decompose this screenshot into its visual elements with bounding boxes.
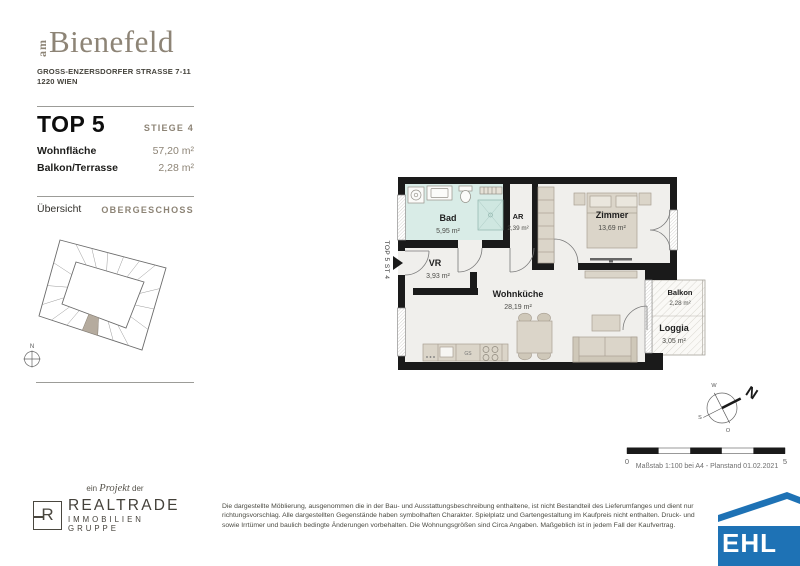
divider-top xyxy=(37,106,194,107)
area-label: Balkon/Terrasse xyxy=(37,162,118,174)
realtrade-logo: R REALTRADE IMMOBILIEN GRUPPE xyxy=(33,498,197,533)
room-name-zimmer: Zimmer xyxy=(596,210,629,220)
room-area-zimmer: 13,69 m² xyxy=(598,225,626,232)
unit-stiege: STIEGE 4 xyxy=(144,123,194,133)
ehl-wordmark: EHL xyxy=(722,528,777,559)
realtrade-name: REALTRADE xyxy=(68,498,197,514)
wardrobe xyxy=(538,187,554,263)
overview-floor: OBERGESCHOSS xyxy=(101,205,194,215)
area-value: 2,28 m² xyxy=(158,162,194,174)
disclaimer-line-2: richtungsvorschlag. Alle dargestellten G… xyxy=(222,511,719,520)
room-area-ar: 2,39 m² xyxy=(507,225,528,232)
project-address: GROSS-ENZERSDORFER STRASSE 7-11 1220 WIE… xyxy=(37,67,191,86)
entrance-label: TOP 5 ST 4 xyxy=(383,241,390,280)
north-needle xyxy=(722,399,741,409)
apartment-floorplan: GS Bad 5,95 m² AR 2,39 m² Zimmer 13,69 m… xyxy=(373,163,718,378)
overview-header: Übersicht OBERGESCHOSS xyxy=(37,203,194,215)
room-area-balkon: 2,28 m² xyxy=(669,300,690,307)
legal-disclaimer: Die dargestellte Möblierung, ausgenommen… xyxy=(222,502,719,530)
unit-header: TOP 5 STIEGE 4 xyxy=(37,112,194,136)
sideboard xyxy=(585,271,637,278)
kitchen-sink xyxy=(440,347,453,357)
brand-logo: am Bienefeld xyxy=(36,27,174,57)
realtrade-letter: R xyxy=(34,505,61,525)
washing-machine xyxy=(408,187,424,203)
radiator xyxy=(480,187,502,194)
room-name-bad: Bad xyxy=(439,213,456,223)
compass-s: S xyxy=(698,415,702,421)
credit-word: Projekt xyxy=(99,483,130,494)
room-name-balkon: Balkon xyxy=(667,288,692,297)
room-area-wohnkueche: 28,19 m² xyxy=(504,304,532,311)
tv-stand xyxy=(609,261,613,263)
room-name-loggia: Loggia xyxy=(659,323,689,333)
compass-n: N xyxy=(742,383,760,403)
address-line-2: 1220 WIEN xyxy=(37,77,191,87)
realtrade-line xyxy=(34,516,44,518)
project-credit-line: ein Projekt der xyxy=(33,483,197,494)
disclaimer-line-3: sowie Irrtümer und baulich bedingte Ände… xyxy=(222,521,719,530)
area-label: Wohnfläche xyxy=(37,145,96,157)
sink-vanity xyxy=(427,186,452,200)
room-area-bad: 5,95 m² xyxy=(436,228,460,235)
overview-label: Übersicht xyxy=(37,203,81,215)
compass-rose: N W S O xyxy=(686,378,766,440)
room-area-vr: 3,93 m² xyxy=(426,273,450,280)
nightstand-right xyxy=(639,193,651,205)
room-area-loggia: 3,05 m² xyxy=(662,338,686,345)
building-outline xyxy=(39,240,166,350)
divider-overview xyxy=(36,382,194,383)
dishwasher-label: GS xyxy=(464,351,472,357)
realtrade-mark-icon: R xyxy=(33,501,62,530)
sofa xyxy=(573,337,637,362)
ehl-logo: EHL xyxy=(712,486,800,566)
address-line-1: GROSS-ENZERSDORFER STRASSE 7-11 xyxy=(37,67,191,77)
overview-compass: N xyxy=(24,344,41,368)
divider-mid xyxy=(37,196,194,197)
coffee-table xyxy=(592,315,620,331)
compass-o: O xyxy=(726,428,731,434)
credit-post: der xyxy=(130,484,144,493)
overview-siteplan: N xyxy=(14,230,204,382)
balcony-glass-door xyxy=(645,280,652,353)
compass-w: W xyxy=(711,383,717,389)
french-window-zimmer xyxy=(670,210,678,250)
window-wohnkueche xyxy=(398,308,406,356)
nightstand-left xyxy=(574,193,585,205)
brand-logo-name: Bienefeld xyxy=(49,27,174,57)
realtrade-subtitle: IMMOBILIEN GRUPPE xyxy=(68,515,197,533)
brand-logo-prefix: am xyxy=(36,27,48,57)
realtrade-wordmark: REALTRADE IMMOBILIEN GRUPPE xyxy=(68,498,197,533)
room-name-ar: AR xyxy=(513,212,524,221)
shower xyxy=(478,200,503,230)
tv xyxy=(590,258,632,261)
room-name-vr: VR xyxy=(429,258,442,268)
window-bad xyxy=(398,195,406,240)
room-name-wohnkueche: Wohnküche xyxy=(493,289,544,299)
bed xyxy=(587,193,637,248)
disclaimer-line-1: Die dargestellte Möblierung, ausgenommen… xyxy=(222,502,719,511)
kitchen-counter: GS xyxy=(423,344,508,361)
overview-compass-letter: N xyxy=(30,344,34,350)
credit-pre: ein xyxy=(86,484,99,493)
scale-caption: Maßstab 1:100 bei A4 - Planstand 01.02.2… xyxy=(612,463,800,470)
project-credit: ein Projekt der R REALTRADE IMMOBILIEN G… xyxy=(33,483,197,533)
area-row-balkon: Balkon/Terrasse 2,28 m² xyxy=(37,162,194,174)
ehl-roof-icon xyxy=(718,492,800,522)
area-row-wohnflaeche: Wohnfläche 57,20 m² xyxy=(37,145,194,157)
unit-title: TOP 5 xyxy=(37,112,105,136)
floorplan-page: am Bienefeld GROSS-ENZERSDORFER STRASSE … xyxy=(0,0,800,566)
area-value: 57,20 m² xyxy=(153,145,194,157)
